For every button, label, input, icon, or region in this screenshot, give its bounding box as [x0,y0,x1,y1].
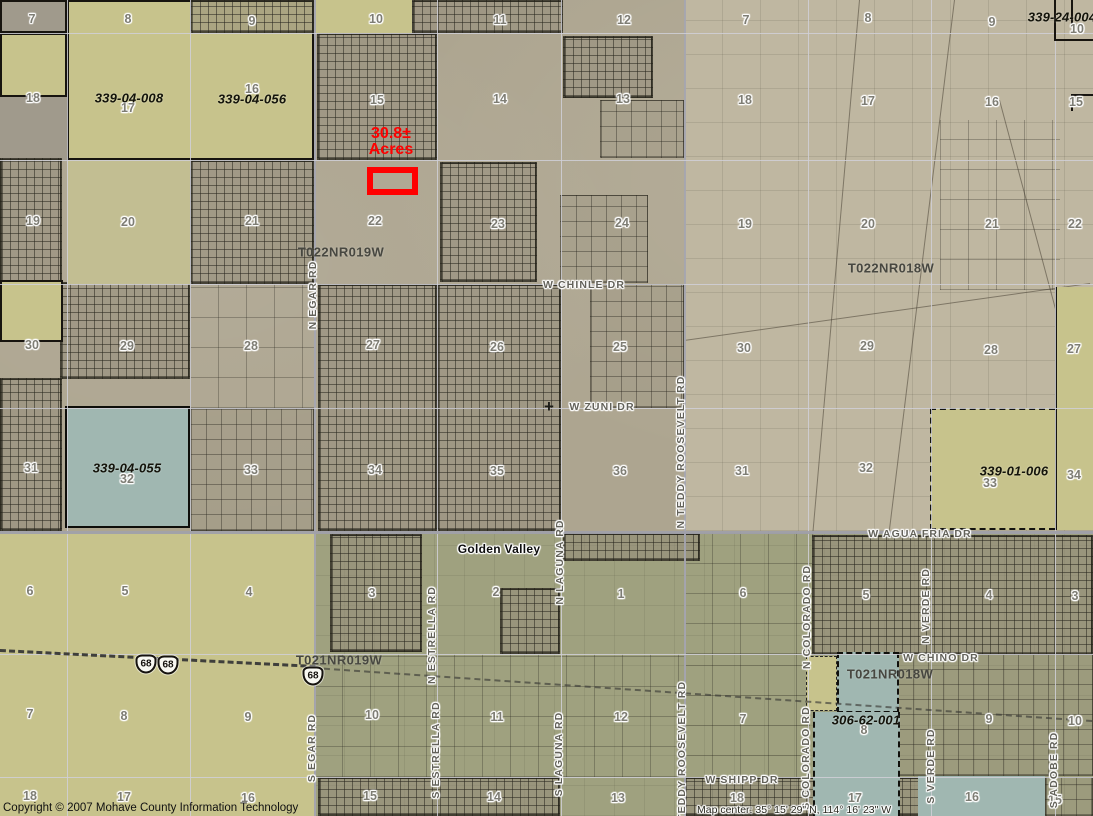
subdivision-grid [500,588,560,654]
section-number: 12 [617,13,631,27]
acreage-annotation: 30.8± Acres [351,126,431,158]
map-canvas[interactable]: + 78910111218171615141319202122232430292… [0,0,1093,816]
survey-cross-marker: + [544,397,554,417]
section-number: 22 [368,214,382,228]
parcel-boundary [1071,94,1073,111]
section-line [0,777,1093,778]
plat-region-339-01-006 [930,408,1055,530]
section-number: 36 [613,464,627,478]
subdivision-grid [318,777,560,816]
subdivision-grid [60,282,190,379]
parcel-boundary [1054,39,1093,41]
plat-region [0,33,67,97]
plat-region [0,280,63,342]
subdivision-grid [190,408,314,531]
plat-region [314,0,412,33]
subdivision-grid [600,100,684,158]
aerial-patch [0,0,67,33]
parcel-region-306-62-001 [813,712,900,816]
section-line [0,33,1093,34]
subdivision-grid [330,534,422,652]
subdivision-grid [0,378,62,531]
plat-region [67,160,190,284]
section-line [0,284,1093,285]
acreage-unit: Acres [351,142,431,158]
map-center-coordinates: Map center: 35° 15' 29" N, 114° 16' 23" … [697,804,891,816]
subdivision-grid [1045,777,1093,816]
parcel-region-339-04-055 [65,406,190,528]
parcel-boundary [1071,94,1093,96]
subdivision-grid [0,158,62,284]
subdivision-grid [412,0,563,33]
acreage-value: 30.8± [351,126,431,142]
plat-region-bottom-left [0,531,314,816]
subdivision-grid [190,0,314,33]
subdivision-grid [440,162,537,282]
township-line [0,531,1093,534]
parcel-boundary [1054,0,1056,40]
subdivision-grid [563,36,653,98]
selected-parcel-outline [367,167,418,195]
parcel-region [918,776,1045,816]
subdivision-grid [560,195,648,283]
copyright-text: Copyright © 2007 Mohave County Informati… [3,802,298,814]
section-number: 14 [493,92,507,106]
subdivision-grid [190,160,314,284]
subdivision-grid [812,535,1093,655]
section-line [0,160,1093,161]
subdivision-grid [563,533,700,561]
subdivision-grid [940,120,1060,290]
subdivision-grid [590,284,684,408]
aerial-patch [0,97,67,160]
subdivision-grid [190,284,314,408]
subdivision-grid [684,531,812,654]
parcel-boundary [1071,0,1073,27]
place-label: Golden Valley [458,542,541,556]
